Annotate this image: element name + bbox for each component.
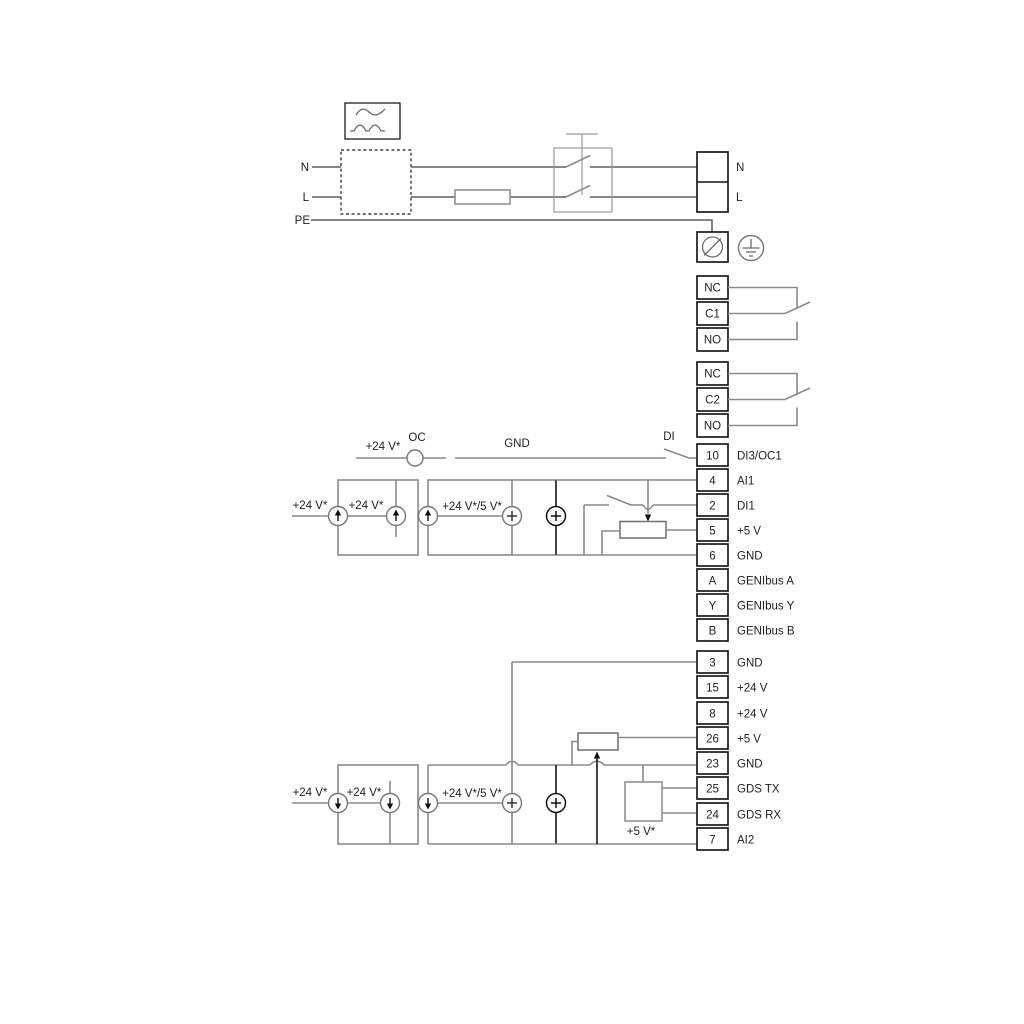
relay2-c: C2 [705, 395, 720, 407]
main-switch-icon [554, 134, 612, 212]
pin-number: 5 [709, 526, 715, 538]
oc-output-icon [407, 450, 423, 466]
power-section: N L PE N L [295, 103, 764, 262]
potentiometer-icon [620, 522, 666, 539]
label-l-left: L [303, 192, 310, 204]
terminal-strip-2: 3 15 8 26 23 25 24 7 GND +24 V +24 V +5 … [697, 651, 781, 850]
pe-screw-terminal [697, 232, 728, 262]
relay2-contact-icon [728, 374, 810, 426]
ac-supply-icon [345, 103, 400, 139]
fuse-icon [455, 190, 510, 204]
pin-number: 7 [709, 835, 715, 847]
power-wires [311, 167, 712, 232]
pin-label: DI1 [737, 501, 755, 513]
potentiometer-icon [578, 733, 618, 750]
relay1-c: C1 [705, 309, 720, 321]
mains-terminal-block [697, 152, 728, 212]
pin-number: B [709, 626, 717, 638]
pin-number: A [709, 576, 717, 588]
label-24v-int: +24 V* [349, 500, 384, 512]
current-source-up-icon [419, 507, 438, 526]
pin-number: 26 [706, 734, 719, 746]
current-source-down-icon [419, 794, 438, 813]
voltage-source-icon [547, 794, 566, 813]
earth-ground-icon [739, 236, 764, 261]
oc-gnd-di-row: +24 V* OC GND DI [356, 431, 697, 466]
relay-1: NC C1 NO [697, 276, 810, 351]
label-l-right: L [736, 192, 743, 204]
pin-number: 3 [709, 658, 715, 670]
pin-label: GND [737, 658, 763, 670]
relay1-no: NO [704, 335, 721, 347]
pin-label: +5 V [737, 526, 761, 538]
pin-number: 25 [706, 784, 719, 796]
pin-label: DI3/OC1 [737, 451, 782, 463]
lower-signal-block: +24 V* +24 V* +24 V*/5 V* +5 V* [292, 662, 697, 844]
label-24v-ext: +24 V* [293, 500, 328, 512]
pin-number: 4 [709, 476, 716, 488]
label-di: DI [663, 431, 675, 443]
pin-label: GENIbus A [737, 576, 794, 588]
label-24v-ext: +24 V* [293, 787, 328, 799]
voltage-source-icon [503, 794, 522, 813]
relay2-no: NO [704, 421, 721, 433]
label-oc: OC [408, 432, 425, 444]
relay1-contact-icon [728, 288, 810, 340]
label-24v-5v: +24 V*/5 V* [442, 788, 502, 800]
gds-device-box [625, 782, 662, 821]
voltage-source-icon [503, 507, 522, 526]
current-source-down-icon [329, 794, 348, 813]
di1-switch-icon [607, 496, 631, 506]
pin-number: 8 [709, 709, 715, 721]
voltage-source-icon [547, 507, 566, 526]
pin-label: GDS TX [737, 784, 780, 796]
option-box-b [428, 480, 512, 555]
current-source-up-icon [387, 507, 406, 526]
pin-number: 23 [706, 759, 719, 771]
current-source-down-icon [381, 794, 400, 813]
pin-number: 24 [706, 810, 719, 822]
wiper-arrow-icon [645, 515, 651, 522]
pin-label: AI2 [737, 835, 754, 847]
pin-label: +5 V [737, 734, 761, 746]
pin-label: +24 V [737, 683, 768, 695]
pin-number: Y [709, 601, 717, 613]
option-box-a [338, 765, 418, 844]
label-n-left: N [301, 162, 309, 174]
relay2-nc: NC [704, 369, 721, 381]
pin-label: GND [737, 551, 763, 563]
wiper-arrow-icon [594, 752, 600, 759]
label-24v-oc: +24 V* [366, 441, 401, 453]
label-24v-int: +24 V* [347, 787, 382, 799]
pin-number: 6 [709, 551, 715, 563]
di-switch-icon [664, 449, 689, 458]
label-5v: +5 V* [627, 826, 656, 838]
label-24v-5v: +24 V*/5 V* [442, 501, 502, 513]
terminal-strip-1: 10 4 2 5 6 A Y B DI3/OC1 AI1 DI1 +5 V GN… [697, 444, 795, 641]
dashed-device-box [341, 150, 411, 214]
label-n-right: N [736, 162, 744, 174]
pin-label: GENIbus Y [737, 601, 795, 613]
pin-number: 15 [706, 683, 719, 695]
pin-label: GENIbus B [737, 626, 795, 638]
pin-number: 2 [709, 501, 715, 513]
pin-number: 10 [706, 451, 719, 463]
pin-label: GDS RX [737, 810, 781, 822]
label-gnd: GND [504, 438, 530, 450]
upper-signal-block: +24 V* +24 V* +24 V*/5 V* [292, 480, 697, 555]
current-source-up-icon [329, 507, 348, 526]
pin-label: +24 V [737, 709, 768, 721]
label-pe: PE [295, 215, 311, 227]
pin-label: AI1 [737, 476, 754, 488]
wiring-diagram: N L PE N L NC C1 NO NC C2 NO [0, 0, 1024, 1024]
relay1-nc: NC [704, 283, 721, 295]
pin-label: GND [737, 759, 763, 771]
relay-2: NC C2 NO [697, 362, 810, 437]
